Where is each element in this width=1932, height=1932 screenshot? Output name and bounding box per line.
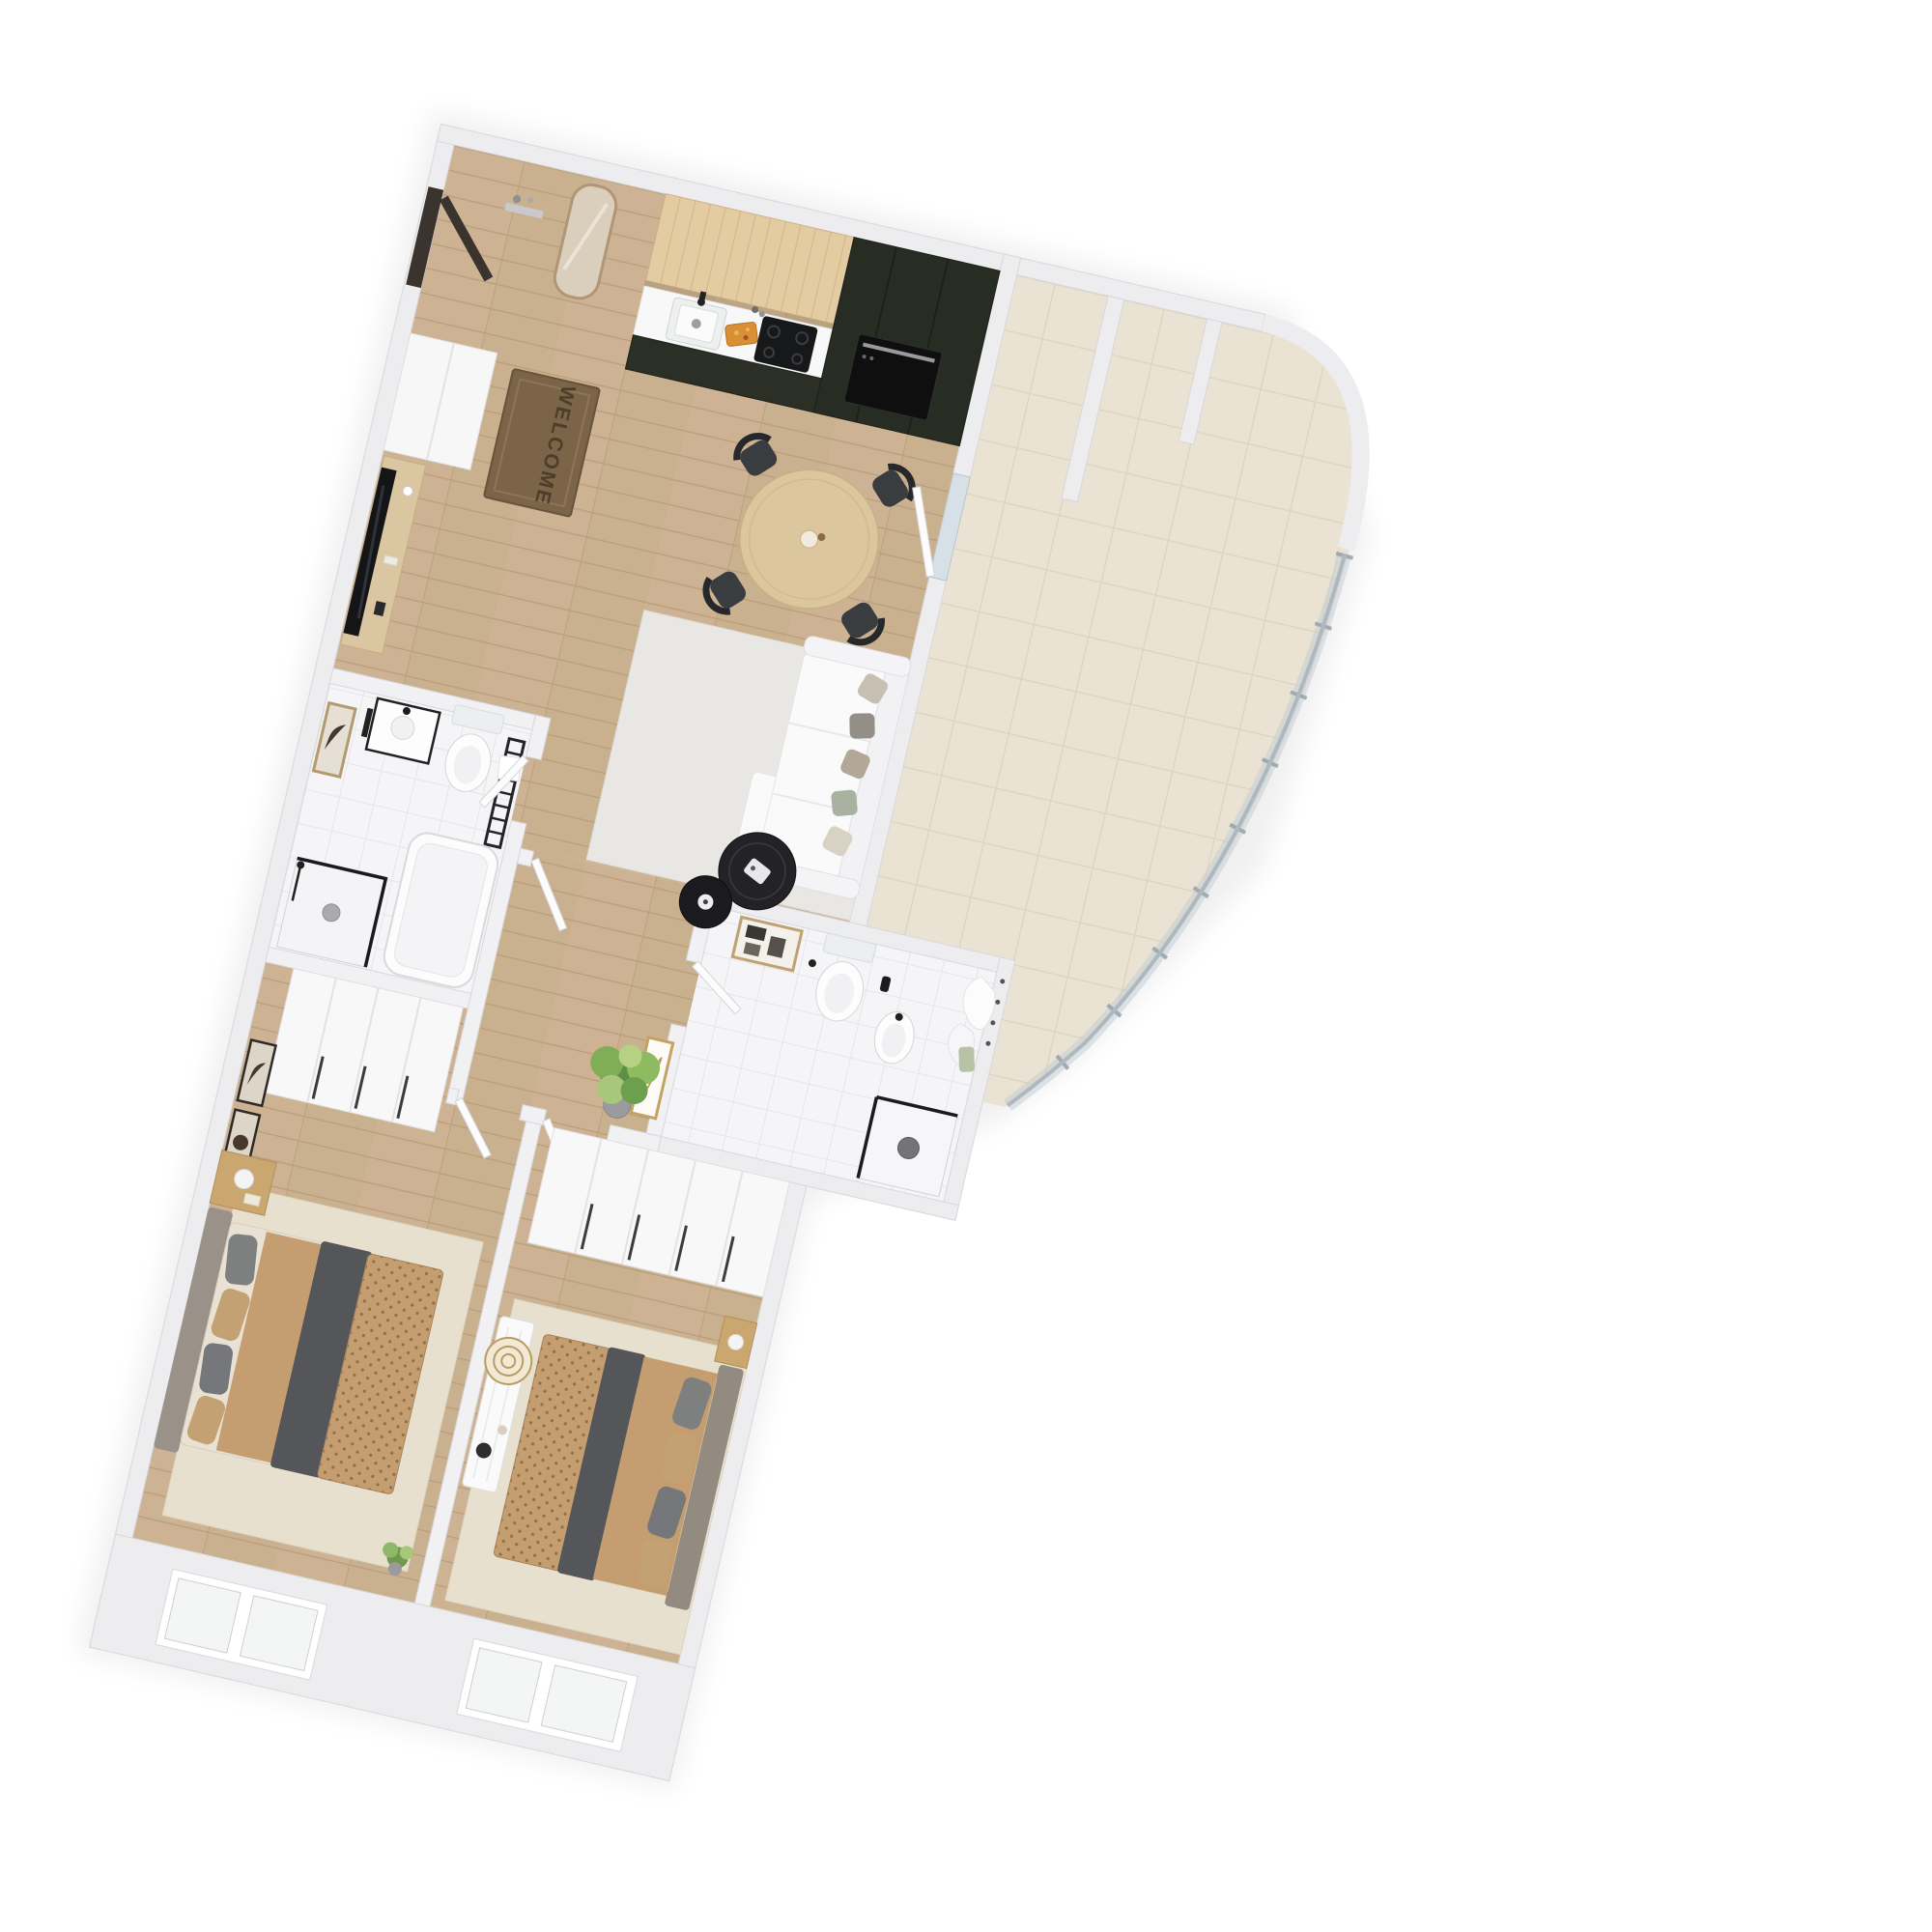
cutting-board [724,322,757,347]
floor-plan-stage: WELCOME [0,0,1932,1932]
wall-hall-stub [517,848,533,867]
floor-plan-svg: WELCOME [0,0,1932,1932]
bedroom1-nightstand [210,1151,276,1216]
apartment: WELCOME [76,110,1416,1879]
walk-in-shower [277,858,386,967]
walk-in-shower-2 [858,1097,957,1197]
